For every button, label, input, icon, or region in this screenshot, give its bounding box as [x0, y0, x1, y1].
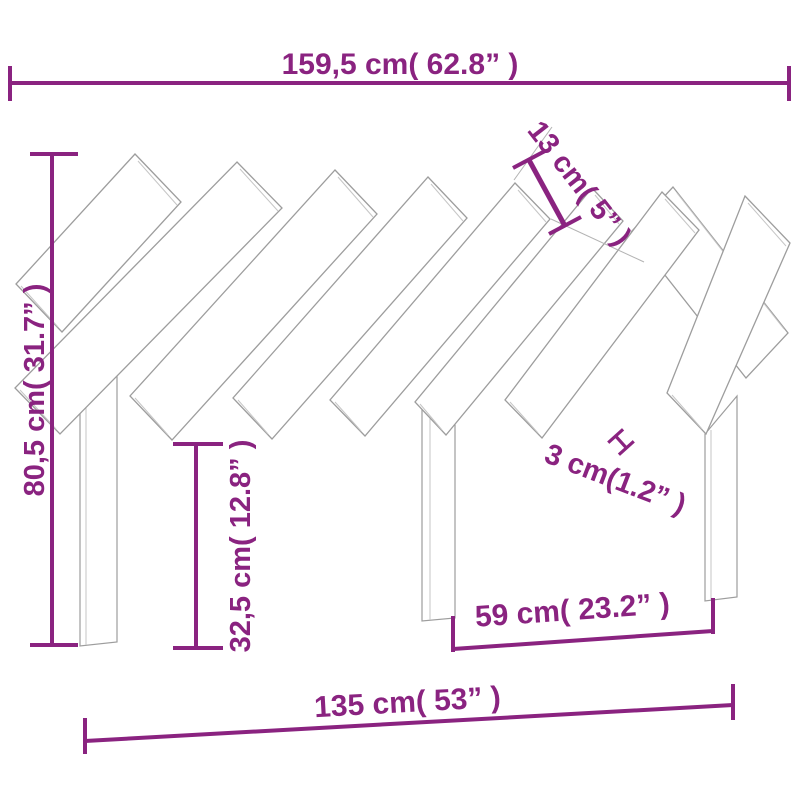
dimension-leg-height: 32,5 cm( 12.8” ) — [173, 440, 257, 653]
leg-height-label: 32,5 cm( 12.8” ) — [225, 440, 257, 653]
leg-middle — [422, 402, 455, 621]
dimension-base-width: 135 cm( 53” ) — [85, 681, 733, 754]
overall-width-label: 159,5 cm( 62.8” ) — [282, 48, 519, 81]
diagram-canvas: 159,5 cm( 62.8” ) 80,5 cm( 31.7” ) 32,5 … — [0, 0, 800, 800]
dimension-slat-gap: 3 cm(1.2” ) — [540, 429, 690, 521]
slat-gap-label: 3 cm(1.2” ) — [540, 438, 690, 521]
leg-spacing-label: 59 cm( 23.2” ) — [474, 587, 671, 634]
headboard-dimension-drawing: 159,5 cm( 62.8” ) 80,5 cm( 31.7” ) 32,5 … — [0, 0, 800, 800]
slat-gap-marker — [608, 429, 634, 454]
dimension-leg-spacing: 59 cm( 23.2” ) — [453, 587, 713, 652]
overall-height-label: 80,5 cm( 31.7” ) — [19, 284, 51, 497]
dimension-overall-width: 159,5 cm( 62.8” ) — [10, 48, 789, 101]
